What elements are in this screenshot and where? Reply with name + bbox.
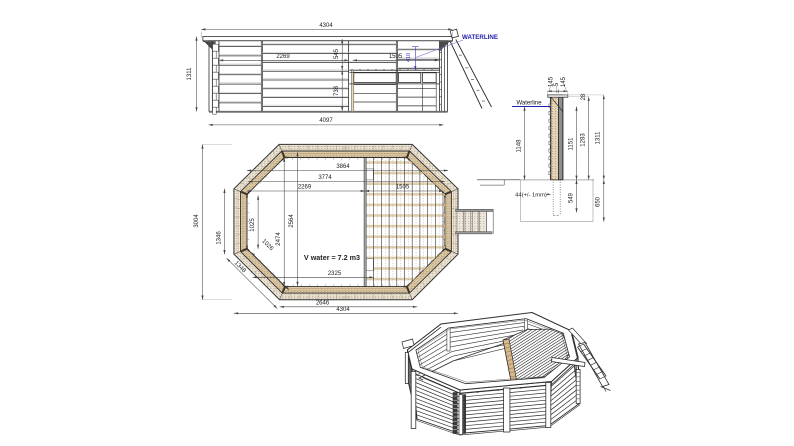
svg-text:WATERLINE: WATERLINE [462, 34, 498, 41]
svg-text:4304: 4304 [319, 23, 333, 29]
svg-text:4097: 4097 [319, 118, 333, 124]
svg-text:410: 410 [406, 53, 412, 62]
svg-text:V water = 7.2 m3: V water = 7.2 m3 [304, 253, 360, 262]
svg-text:1505: 1505 [389, 54, 403, 60]
svg-text:2646: 2646 [316, 301, 330, 307]
svg-text:1148: 1148 [516, 139, 522, 153]
svg-text:3004: 3004 [194, 214, 200, 228]
svg-text:9804: 9804 [342, 146, 350, 150]
svg-text:2269: 2269 [298, 185, 312, 191]
svg-text:1505: 1505 [396, 185, 410, 191]
svg-text:145: 145 [561, 76, 567, 87]
svg-text:1311: 1311 [596, 131, 602, 145]
svg-text:1346: 1346 [216, 231, 222, 245]
svg-text:2564: 2564 [289, 214, 295, 228]
svg-text:44(+/- 1mm): 44(+/- 1mm) [515, 192, 547, 198]
svg-text:9804: 9804 [342, 296, 350, 300]
svg-text:545: 545 [334, 48, 340, 59]
svg-text:2474: 2474 [276, 232, 282, 246]
svg-text:1151: 1151 [568, 137, 574, 151]
svg-text:Waterline: Waterline [516, 100, 542, 106]
svg-text:1311: 1311 [187, 67, 193, 81]
svg-text:3774: 3774 [318, 175, 332, 181]
svg-text:2325: 2325 [328, 271, 342, 277]
svg-text:3864: 3864 [336, 164, 350, 170]
svg-text:1025: 1025 [250, 218, 256, 232]
svg-text:1283: 1283 [581, 133, 587, 147]
svg-text:4304: 4304 [336, 307, 350, 313]
svg-text:650: 650 [596, 196, 602, 207]
svg-text:2269: 2269 [276, 54, 290, 60]
svg-text:549: 549 [568, 192, 574, 203]
svg-text:738: 738 [334, 85, 340, 96]
